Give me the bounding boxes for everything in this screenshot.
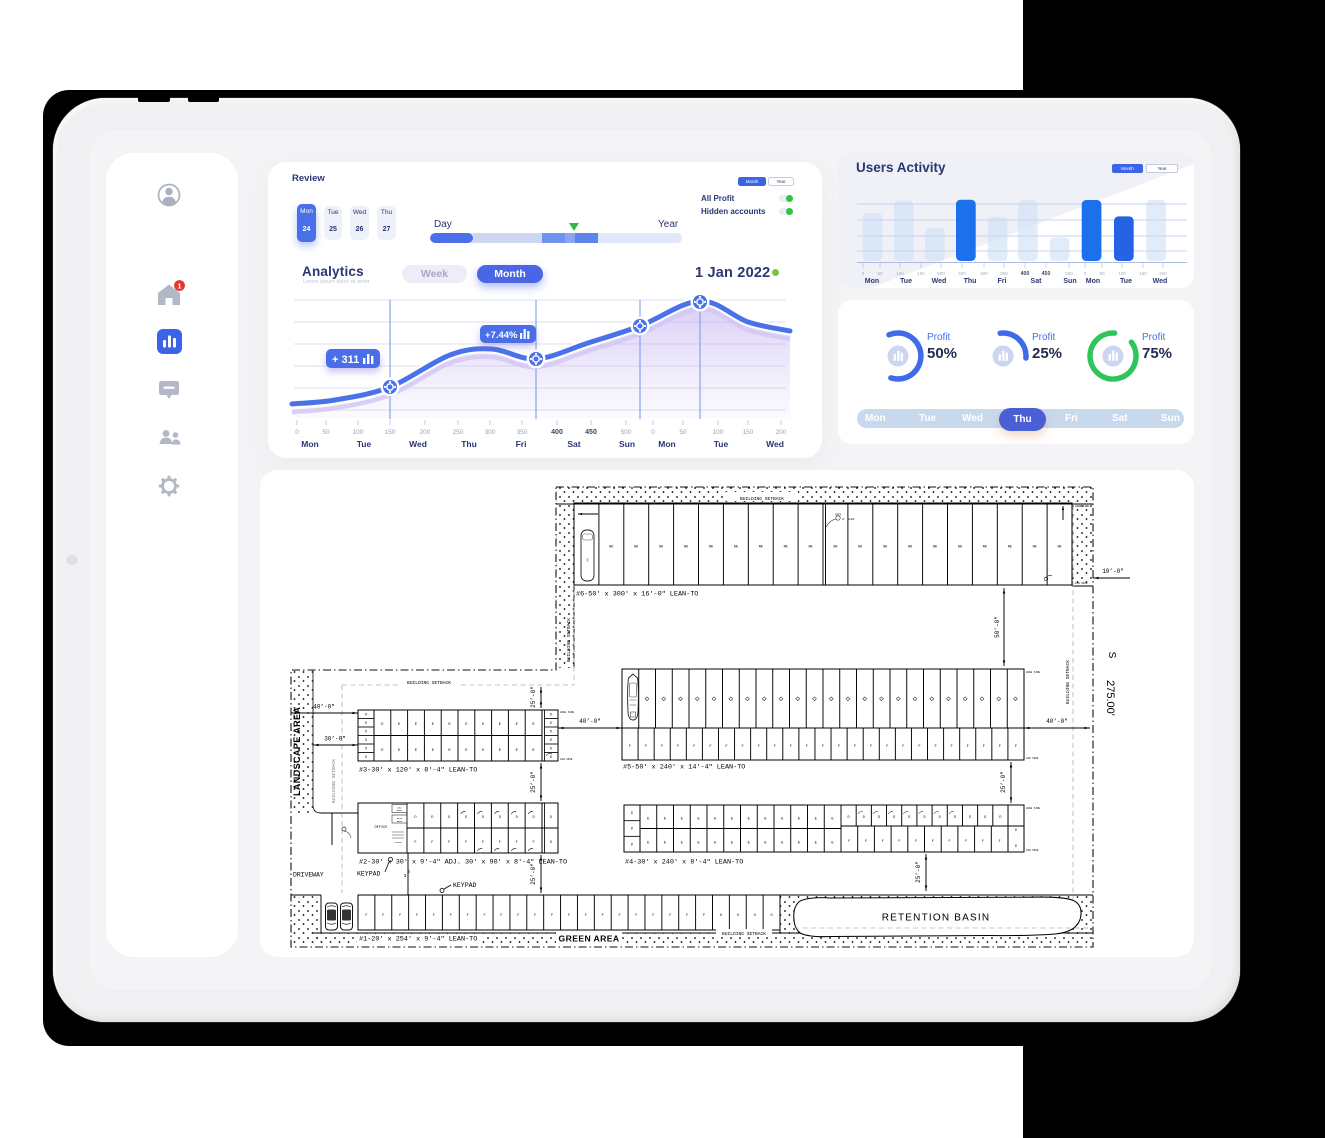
svg-text:200: 200 [1159, 271, 1167, 276]
svg-text:F: F [1015, 745, 1017, 749]
svg-text:RETENTION BASIN: RETENTION BASIN [882, 913, 991, 924]
svg-text:F: F [499, 841, 501, 845]
svg-text:350: 350 [517, 429, 528, 436]
svg-text:200: 200 [776, 429, 787, 436]
svg-text:Mon: Mon [865, 278, 879, 285]
svg-text:O: O [720, 914, 722, 918]
svg-text:S: S [1106, 652, 1117, 659]
svg-text:E: E [664, 842, 667, 846]
svg-text:50’-0": 50’-0" [994, 616, 1001, 638]
svg-text:E: E [748, 818, 751, 822]
svg-text:F: F [870, 745, 872, 749]
svg-text:NK: NK [908, 546, 913, 550]
svg-text:HIGH SIDE: HIGH SIDE [1075, 505, 1089, 508]
svg-text:HIGH SIDE: HIGH SIDE [560, 711, 574, 714]
svg-text:100: 100 [713, 429, 724, 436]
svg-text:E: E [647, 818, 650, 822]
svg-text:D: D [893, 816, 895, 820]
svg-text:E: E [697, 842, 700, 846]
svg-text:E: E [398, 723, 401, 727]
svg-text:D: D [499, 816, 501, 820]
svg-text:OFFICE: OFFICE [375, 826, 388, 830]
svg-text:Tue: Tue [714, 439, 729, 449]
svg-text:F: F [645, 745, 647, 749]
svg-text:D: D [550, 747, 552, 751]
svg-text:D: D [939, 816, 941, 820]
svg-text:E: E [532, 749, 535, 753]
svg-text:Wed: Wed [409, 439, 427, 449]
svg-text:E: E [647, 842, 650, 846]
svg-text:LANDSCAPE AREA: LANDSCAPE AREA [292, 707, 302, 796]
svg-text:E: E [714, 818, 717, 822]
svg-text:50: 50 [322, 429, 330, 436]
svg-text:+ 311: + 311 [332, 354, 359, 366]
svg-text:F: F [484, 914, 486, 918]
svg-text:O: O [770, 914, 772, 918]
svg-text:D: D [631, 843, 633, 847]
svg-text:25’-0": 25’-0" [915, 861, 922, 883]
svg-text:D: D [550, 722, 552, 726]
svg-text:F: F [999, 840, 1001, 844]
svg-text:E: E [748, 842, 751, 846]
svg-text:10’-0": 10’-0" [1102, 568, 1124, 575]
svg-text:Wed: Wed [766, 439, 784, 449]
svg-text:F: F [915, 840, 917, 844]
svg-text:NK: NK [784, 546, 789, 550]
svg-text:D: D [365, 722, 367, 726]
svg-text:F: F [382, 914, 384, 918]
svg-text:3: 3 [404, 873, 407, 879]
svg-text:F: F [693, 745, 695, 749]
svg-text:BUILDING SETBACK: BUILDING SETBACK [1065, 660, 1071, 704]
svg-text:F: F [982, 840, 984, 844]
svg-text:#6-50' x 300' x 16'-0" LEAN-TO: #6-50' x 300' x 16'-0" LEAN-TO [576, 591, 698, 599]
svg-text:Mon: Mon [1086, 278, 1100, 285]
svg-text:350: 350 [1000, 271, 1008, 276]
svg-text:Thu: Thu [964, 278, 977, 285]
svg-text:D: D [516, 816, 518, 820]
svg-text:Fri: Fri [998, 278, 1007, 285]
svg-text:NK: NK [1058, 546, 1063, 550]
svg-text:D: D [878, 816, 880, 820]
svg-text:Tue: Tue [357, 439, 372, 449]
svg-text:F: F [902, 745, 904, 749]
svg-text:F: F [865, 840, 867, 844]
svg-text:300: 300 [485, 429, 496, 436]
svg-text:F: F [399, 914, 401, 918]
svg-text:50: 50 [679, 429, 687, 436]
svg-text:D: D [365, 739, 367, 743]
svg-text:HIGH SIDE: HIGH SIDE [1026, 807, 1040, 810]
svg-text:F: F [951, 745, 953, 749]
svg-text:E: E [516, 723, 519, 727]
svg-text:F: F [448, 841, 450, 845]
svg-text:D: D [431, 816, 433, 820]
svg-text:NK: NK [858, 546, 863, 550]
svg-text:200: 200 [420, 429, 431, 436]
svg-text:1: 1 [177, 281, 181, 290]
svg-text:E: E [415, 723, 418, 727]
svg-text:150: 150 [917, 271, 925, 276]
svg-text:LOW SIDE: LOW SIDE [1075, 582, 1088, 585]
svg-text:D: D [984, 816, 986, 820]
svg-text:25’-0": 25’-0" [1000, 771, 1007, 793]
svg-text:400: 400 [551, 429, 563, 436]
svg-text:E: E [516, 749, 519, 753]
svg-text:#1-20' x 254' x 9'-4" LEAN-TO: #1-20' x 254' x 9'-4" LEAN-TO [359, 936, 477, 944]
svg-text:KEYPAD: KEYPAD [357, 871, 381, 878]
svg-text:40’-0": 40’-0" [1046, 718, 1068, 725]
svg-text:E: E [381, 749, 384, 753]
svg-text:D: D [550, 841, 552, 845]
svg-text:NK: NK [833, 546, 838, 550]
svg-text:50: 50 [1099, 271, 1105, 276]
svg-text:NK: NK [609, 546, 614, 550]
svg-text:E: E [465, 723, 468, 727]
svg-text:F: F [532, 841, 534, 845]
svg-text:F: F [669, 914, 671, 918]
svg-text:E: E [398, 749, 401, 753]
svg-text:150: 150 [1139, 271, 1147, 276]
svg-text:E: E [731, 842, 734, 846]
svg-text:E: E [681, 818, 684, 822]
svg-text:F: F [934, 745, 936, 749]
svg-text:Sun: Sun [1063, 278, 1076, 285]
svg-text:E: E [448, 749, 451, 753]
svg-text:D: D [954, 816, 956, 820]
svg-text:ROOM: ROOM [397, 820, 403, 823]
svg-text:E: E [482, 749, 485, 753]
svg-text:GREEN AREA: GREEN AREA [559, 934, 620, 944]
svg-text:E: E [448, 723, 451, 727]
svg-text:0: 0 [862, 271, 865, 276]
svg-text:F: F [898, 840, 900, 844]
svg-text:F: F [848, 840, 850, 844]
svg-text:D: D [631, 828, 633, 832]
svg-text:BUILDING SETBACK: BUILDING SETBACK [407, 680, 451, 686]
svg-text:0: 0 [651, 429, 655, 436]
svg-text:E: E [499, 723, 502, 727]
svg-text:E: E [781, 818, 784, 822]
svg-text:450: 450 [585, 429, 597, 436]
svg-text:DRIVEWAY: DRIVEWAY [293, 872, 324, 879]
svg-text:E: E [781, 842, 784, 846]
svg-text:18': 18' [407, 868, 411, 874]
svg-text:E: E [415, 749, 418, 753]
svg-text:F: F [677, 745, 679, 749]
svg-text:Mon: Mon [301, 439, 318, 449]
svg-text:Sat: Sat [1031, 278, 1043, 285]
svg-text:NK: NK [734, 546, 739, 550]
svg-text:F: F [652, 914, 654, 918]
svg-text:#5-50' x 240' x 14'-4" LEAN-TO: #5-50' x 240' x 14'-4" LEAN-TO [623, 764, 745, 772]
svg-text:Thu: Thu [461, 439, 477, 449]
svg-text:Tue: Tue [1120, 278, 1132, 285]
svg-text:D: D [863, 816, 865, 820]
svg-text:#4-30' x 240' x 8'-4" LEAN-TO: #4-30' x 240' x 8'-4" LEAN-TO [625, 859, 743, 867]
svg-text:D: D [969, 816, 971, 820]
svg-text:E: E [764, 818, 767, 822]
svg-text:LOW SIDE: LOW SIDE [560, 758, 573, 761]
svg-text:O: O [737, 914, 739, 918]
svg-text:O: O [754, 914, 756, 918]
svg-text:E: E [798, 842, 801, 846]
svg-text:E: E [465, 749, 468, 753]
svg-text:F: F [629, 745, 631, 749]
svg-text:E: E [499, 749, 502, 753]
svg-text:F: F [585, 914, 587, 918]
svg-text:250: 250 [453, 429, 464, 436]
svg-text:F: F [517, 914, 519, 918]
svg-text:25’-0": 25’-0" [530, 863, 537, 885]
svg-text:F: F [790, 745, 792, 749]
svg-text:F: F [534, 914, 536, 918]
svg-text:E: E [532, 723, 535, 727]
svg-text:NK: NK [634, 546, 639, 550]
svg-text:F: F [854, 745, 856, 749]
svg-text:D: D [550, 756, 552, 760]
svg-text:D: D [550, 816, 552, 820]
svg-text:LOW SIDE: LOW SIDE [1026, 849, 1039, 852]
svg-text:500: 500 [621, 429, 632, 436]
svg-text:F: F [414, 841, 416, 845]
svg-text:NK: NK [933, 546, 938, 550]
svg-text:D: D [923, 816, 925, 820]
svg-text:E: E [831, 842, 834, 846]
svg-text:F: F [635, 914, 637, 918]
svg-text:F: F [758, 745, 760, 749]
svg-text:F: F [619, 914, 621, 918]
svg-text:D: D [365, 747, 367, 751]
svg-text:25’-0": 25’-0" [530, 771, 537, 793]
svg-text:200: 200 [937, 271, 945, 276]
svg-text:50: 50 [877, 271, 883, 276]
svg-text:F: F [365, 914, 367, 918]
svg-text:F: F [500, 914, 502, 918]
svg-text:NK: NK [958, 546, 963, 550]
svg-text:450: 450 [1042, 271, 1051, 277]
svg-text:D: D [1015, 845, 1017, 849]
svg-text:F: F [709, 745, 711, 749]
svg-text:D: D [414, 816, 416, 820]
svg-text:F: F [822, 745, 824, 749]
svg-text:F: F [886, 745, 888, 749]
svg-text:BUILDING SETBACK: BUILDING SETBACK [722, 931, 766, 937]
svg-text:F: F [774, 745, 776, 749]
svg-text:NK: NK [983, 546, 988, 550]
svg-text:150: 150 [743, 429, 754, 436]
svg-text:F: F [661, 745, 663, 749]
svg-text:E: E [831, 818, 834, 822]
svg-text:E: E [432, 723, 435, 727]
svg-text:F: F [806, 745, 808, 749]
svg-text:25’-0": 25’-0" [530, 686, 537, 708]
svg-text:F: F [431, 841, 433, 845]
svg-text:E: E [731, 818, 734, 822]
svg-text:F: F [948, 840, 950, 844]
svg-text:F: F [465, 841, 467, 845]
svg-text:300: 300 [980, 271, 988, 276]
svg-text:E: E [432, 749, 435, 753]
svg-text:E: E [681, 842, 684, 846]
svg-text:0: 0 [295, 429, 299, 436]
svg-text:D: D [550, 739, 552, 743]
svg-text:NK: NK [659, 546, 664, 550]
svg-text:D: D [482, 816, 484, 820]
svg-text:KEYPAD: KEYPAD [453, 882, 477, 889]
svg-text:D: D [365, 756, 367, 760]
svg-text:30’-0": 30’-0" [324, 736, 346, 743]
svg-text:100: 100 [353, 429, 364, 436]
svg-text:NK: NK [1008, 546, 1013, 550]
svg-text:F: F [741, 745, 743, 749]
svg-text:100: 100 [896, 271, 904, 276]
svg-text:100: 100 [1118, 271, 1126, 276]
svg-text:150: 150 [385, 429, 396, 436]
svg-text:40’-0": 40’-0" [579, 718, 601, 725]
svg-text:500: 500 [1065, 271, 1073, 276]
svg-text:F: F [999, 745, 1001, 749]
svg-text:F: F [838, 745, 840, 749]
svg-text:ROOM: ROOM [397, 809, 403, 812]
svg-text:E: E [482, 723, 485, 727]
svg-text:F: F [450, 914, 452, 918]
svg-text:Sun: Sun [619, 439, 635, 449]
svg-text:F: F [516, 841, 518, 845]
svg-text:F: F [467, 914, 469, 918]
svg-text:NK: NK [883, 546, 888, 550]
svg-text:NK: NK [709, 546, 714, 550]
svg-text:Fri: Fri [516, 439, 527, 449]
svg-text:D: D [448, 816, 450, 820]
svg-text:Wed: Wed [1153, 278, 1168, 285]
svg-text:400: 400 [1021, 271, 1030, 277]
svg-text:F: F [703, 914, 705, 918]
svg-text:F: F [882, 840, 884, 844]
svg-text:D: D [550, 713, 552, 717]
svg-text:NK: NK [809, 546, 814, 550]
svg-text:F: F [602, 914, 604, 918]
svg-text:E: E [798, 818, 801, 822]
svg-text:NK: NK [759, 546, 764, 550]
svg-text:8' ELEC: 8' ELEC [842, 517, 855, 521]
svg-text:D: D [550, 730, 552, 734]
svg-text:250: 250 [958, 271, 966, 276]
svg-text:D: D [1015, 829, 1017, 833]
svg-text:D: D [908, 816, 910, 820]
svg-text:Sat: Sat [567, 439, 580, 449]
svg-text:D: D [532, 816, 534, 820]
svg-text:E: E [697, 818, 700, 822]
svg-text:E: E [764, 842, 767, 846]
svg-text:F: F [725, 745, 727, 749]
svg-text:40’-0": 40’-0" [313, 704, 335, 711]
svg-text:F: F [551, 914, 553, 918]
svg-text:D: D [848, 816, 850, 820]
svg-text:F: F [918, 745, 920, 749]
svg-text:NK: NK [1033, 546, 1038, 550]
svg-text:F: F [983, 745, 985, 749]
svg-text:BUILDING SETBACK: BUILDING SETBACK [331, 759, 337, 803]
svg-text:Mon: Mon [658, 439, 675, 449]
svg-text:BUILDING SETBACK: BUILDING SETBACK [566, 618, 572, 662]
svg-text:STAIRS: STAIRS [394, 841, 403, 844]
svg-text:E: E [714, 842, 717, 846]
svg-text:AB: AB [587, 558, 590, 562]
svg-text:E: E [815, 842, 818, 846]
svg-text:F: F [416, 914, 418, 918]
svg-text:+7.44%: +7.44% [485, 330, 518, 341]
svg-text:D: D [999, 816, 1001, 820]
svg-text:D: D [365, 730, 367, 734]
svg-text:D: D [631, 812, 633, 816]
svg-text:LOW SIDE: LOW SIDE [1026, 757, 1039, 760]
svg-text:F: F [932, 840, 934, 844]
svg-text:NK: NK [684, 546, 689, 550]
svg-text:D: D [365, 713, 367, 717]
svg-text:F: F [965, 840, 967, 844]
svg-text:F: F [967, 745, 969, 749]
svg-text:BUILDING SETBACK: BUILDING SETBACK [740, 496, 784, 502]
svg-text:#3-30' x 120' x 8'-4" LEAN-TO: #3-30' x 120' x 8'-4" LEAN-TO [359, 767, 477, 775]
svg-text:275.00': 275.00' [1104, 680, 1116, 716]
svg-text:F: F [482, 841, 484, 845]
svg-text:F: F [433, 914, 435, 918]
svg-text:E: E [664, 818, 667, 822]
svg-text:F: F [568, 914, 570, 918]
svg-text:HIGH SIDE: HIGH SIDE [1026, 671, 1040, 674]
svg-text:Tue: Tue [900, 278, 912, 285]
svg-text:D: D [465, 816, 467, 820]
svg-text:E: E [815, 818, 818, 822]
svg-text:0: 0 [1084, 271, 1087, 276]
svg-text:Wed: Wed [932, 278, 947, 285]
svg-text:GATE: GATE [835, 514, 842, 517]
svg-text:E: E [381, 723, 384, 727]
svg-text:F: F [686, 914, 688, 918]
